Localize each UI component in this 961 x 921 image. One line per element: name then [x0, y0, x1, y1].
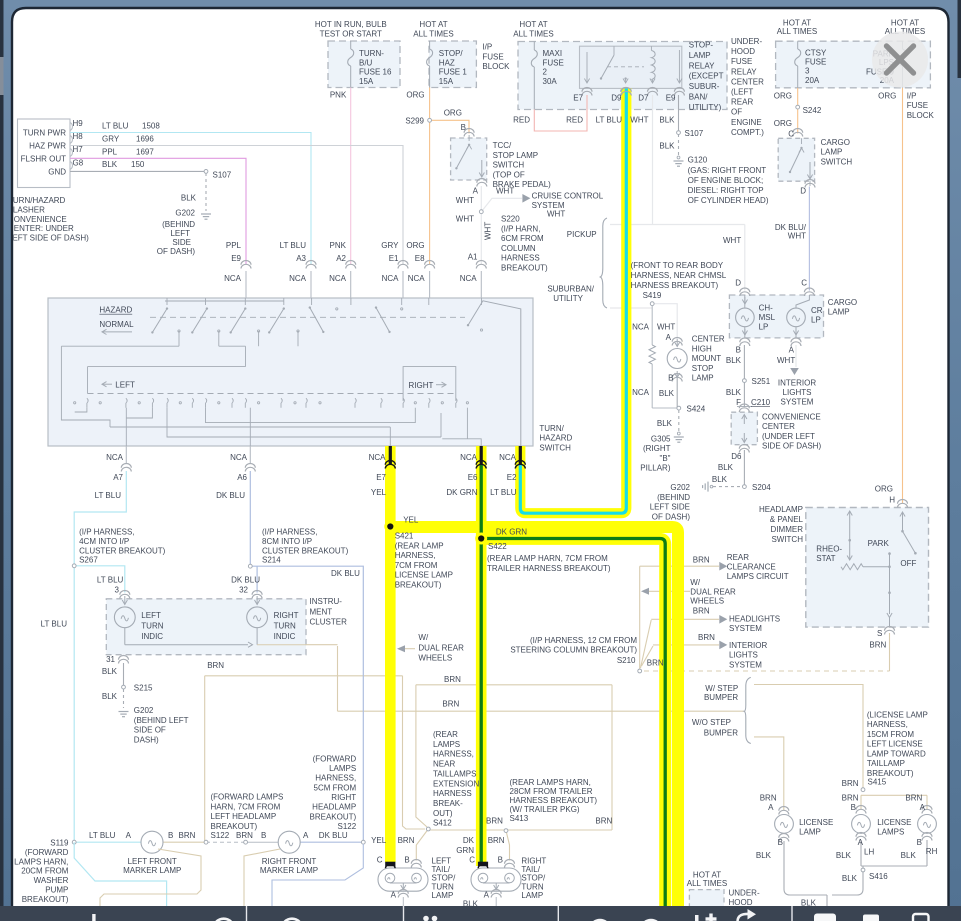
- svg-text:BRN: BRN: [444, 675, 461, 684]
- svg-text:HEADLIGHTS: HEADLIGHTS: [729, 614, 780, 623]
- svg-text:PILLAR): PILLAR): [640, 464, 671, 473]
- svg-text:A: A: [789, 345, 795, 354]
- svg-text:HARNESS,: HARNESS,: [395, 551, 436, 560]
- svg-text:HOOD: HOOD: [729, 898, 753, 907]
- svg-text:RELAY: RELAY: [731, 67, 757, 76]
- svg-text:A1: A1: [468, 253, 478, 262]
- svg-text:S: S: [877, 629, 882, 638]
- svg-text:UTILITY: UTILITY: [553, 294, 583, 303]
- svg-text:150: 150: [131, 160, 145, 169]
- svg-text:TAILLAMPS: TAILLAMPS: [433, 769, 476, 778]
- svg-text:C: C: [377, 855, 383, 864]
- svg-text:ALL TIMES: ALL TIMES: [513, 29, 553, 38]
- svg-text:SUBURBAN/: SUBURBAN/: [547, 285, 594, 294]
- svg-text:HEADLAMP: HEADLAMP: [759, 505, 803, 514]
- svg-text:S267: S267: [79, 556, 98, 565]
- svg-text:BLK: BLK: [842, 874, 858, 883]
- svg-text:A: A: [666, 333, 672, 342]
- svg-text:CONVENIENCE: CONVENIENCE: [762, 412, 821, 421]
- svg-text:SYSTEM: SYSTEM: [781, 398, 814, 407]
- svg-text:MAXI: MAXI: [543, 49, 563, 58]
- svg-text:E7: E7: [573, 94, 583, 103]
- svg-text:ALL TIMES: ALL TIMES: [687, 879, 727, 888]
- svg-text:SWITCH: SWITCH: [493, 161, 525, 170]
- svg-text:1697: 1697: [136, 148, 154, 157]
- svg-text:LT BLU: LT BLU: [280, 241, 307, 250]
- svg-text:(RIGHT: (RIGHT: [643, 444, 671, 453]
- svg-text:LEFT LICENSE: LEFT LICENSE: [867, 740, 923, 749]
- svg-text:DK: DK: [463, 836, 475, 845]
- svg-text:UNDER-: UNDER-: [729, 889, 760, 898]
- svg-text:1508: 1508: [142, 121, 160, 130]
- svg-text:OF CYLINDER HEAD): OF CYLINDER HEAD): [688, 196, 769, 205]
- svg-text:LAMPS HARN,: LAMPS HARN,: [14, 857, 68, 866]
- svg-text:E9: E9: [666, 94, 676, 103]
- svg-text:NCA: NCA: [460, 453, 478, 462]
- svg-text:B: B: [668, 373, 673, 382]
- svg-text:LICENSE LAMP: LICENSE LAMP: [395, 571, 453, 580]
- svg-text:HEADLAMP: HEADLAMP: [312, 803, 356, 812]
- svg-text:S122: S122: [338, 822, 357, 831]
- svg-text:CARGO: CARGO: [828, 298, 857, 307]
- svg-text:(W/ TRAILER PKG): (W/ TRAILER PKG): [510, 805, 580, 814]
- svg-text:LAMPS CIRCUIT: LAMPS CIRCUIT: [727, 572, 789, 581]
- svg-text:BREAK-: BREAK-: [433, 799, 463, 808]
- svg-text:BLK: BLK: [712, 475, 728, 484]
- svg-text:LEFT SIDE: LEFT SIDE: [650, 503, 690, 512]
- svg-text:15A: 15A: [359, 77, 374, 86]
- svg-text:TEST OR START: TEST OR START: [320, 29, 382, 38]
- svg-text:TAILLAMP: TAILLAMP: [867, 759, 905, 768]
- svg-text:G202: G202: [134, 706, 154, 715]
- svg-text:LAMP: LAMP: [692, 374, 714, 383]
- svg-text:LAMP: LAMP: [689, 51, 711, 60]
- svg-text:CLUSTER BREAKOUT): CLUSTER BREAKOUT): [262, 546, 349, 555]
- svg-text:UTILITY): UTILITY): [689, 103, 722, 112]
- svg-text:ORG: ORG: [444, 108, 462, 117]
- svg-text:SIDE OF DASH): SIDE OF DASH): [762, 442, 821, 451]
- svg-text:CENTER: CENTER: [692, 335, 725, 344]
- svg-text:LT BLU: LT BLU: [102, 121, 129, 130]
- svg-text:BUMPER: BUMPER: [704, 728, 738, 737]
- svg-text:30A: 30A: [543, 77, 558, 86]
- svg-text:S119: S119: [50, 838, 69, 847]
- svg-text:B/U: B/U: [359, 58, 373, 67]
- svg-text:STOP LAMP: STOP LAMP: [493, 151, 538, 160]
- svg-text:S215: S215: [134, 683, 153, 692]
- svg-text:TURN/HAZARD: TURN/HAZARD: [8, 196, 66, 205]
- svg-text:A: A: [768, 803, 774, 812]
- svg-text:1696: 1696: [136, 135, 154, 144]
- svg-text:S107: S107: [685, 129, 704, 138]
- svg-text:BRN: BRN: [488, 836, 505, 845]
- svg-text:SYSTEM: SYSTEM: [729, 624, 762, 633]
- svg-text:GND: GND: [48, 167, 66, 176]
- svg-text:LEFT: LEFT: [432, 856, 452, 865]
- svg-text:HAZARD: HAZARD: [99, 305, 132, 314]
- svg-text:TURN: TURN: [521, 882, 543, 891]
- svg-text:COLUMN: COLUMN: [501, 244, 536, 253]
- svg-text:28CM FROM TRAILER: 28CM FROM TRAILER: [510, 787, 593, 796]
- svg-text:B: B: [778, 838, 783, 847]
- svg-text:GRY: GRY: [102, 135, 120, 144]
- svg-text:GRN: GRN: [456, 846, 474, 855]
- svg-text:S242: S242: [803, 106, 822, 115]
- svg-text:(REAR: (REAR: [433, 730, 458, 739]
- svg-text:BLK: BLK: [657, 419, 673, 428]
- svg-text:WHT: WHT: [496, 186, 514, 195]
- svg-text:WHT: WHT: [777, 356, 795, 365]
- svg-text:STEERING COLUMN BREAKOUT): STEERING COLUMN BREAKOUT): [510, 646, 637, 655]
- svg-text:STOP/: STOP/: [521, 874, 546, 883]
- svg-text:W/ STEP: W/ STEP: [705, 684, 738, 693]
- svg-text:E1: E1: [389, 254, 399, 263]
- svg-text:A: A: [858, 838, 864, 847]
- svg-text:D: D: [735, 279, 741, 288]
- svg-text:CONVENIENCE: CONVENIENCE: [8, 215, 67, 224]
- svg-text:NCA: NCA: [382, 274, 400, 283]
- svg-text:15CM FROM: 15CM FROM: [867, 730, 914, 739]
- svg-text:BRN: BRN: [869, 640, 886, 649]
- svg-text:DK BLU: DK BLU: [319, 831, 348, 840]
- svg-text:WHT: WHT: [657, 322, 675, 331]
- svg-text:E8: E8: [415, 254, 425, 263]
- svg-text:BRN: BRN: [442, 699, 459, 708]
- svg-text:TURN: TURN: [432, 882, 454, 891]
- svg-text:B: B: [404, 855, 409, 864]
- svg-text:DK BLU: DK BLU: [216, 491, 245, 500]
- svg-text:B: B: [261, 831, 266, 840]
- svg-text:SWITCH: SWITCH: [539, 443, 571, 452]
- svg-text:TURN: TURN: [274, 622, 296, 631]
- svg-text:FLSHR OUT: FLSHR OUT: [21, 155, 66, 164]
- svg-text:LT BLU: LT BLU: [89, 831, 116, 840]
- svg-text:CENTER: CENTER: [762, 422, 795, 431]
- svg-text:STOP: STOP: [692, 364, 714, 373]
- svg-text:H8: H8: [73, 132, 84, 141]
- svg-text:FUSE 1: FUSE 1: [439, 68, 468, 77]
- svg-text:PNK: PNK: [330, 241, 347, 250]
- svg-text:BREAKOUT): BREAKOUT): [22, 895, 69, 904]
- svg-text:S251: S251: [752, 377, 771, 386]
- svg-text:TRAILER HARNESS BREAKOUT): TRAILER HARNESS BREAKOUT): [487, 564, 611, 573]
- svg-text:RELAY: RELAY: [689, 61, 715, 70]
- svg-text:S416: S416: [869, 872, 888, 881]
- svg-text:BLK: BLK: [901, 851, 917, 860]
- svg-text:MARKER LAMP: MARKER LAMP: [260, 866, 318, 875]
- svg-text:HARNESS, NEAR CHMSL: HARNESS, NEAR CHMSL: [631, 271, 727, 280]
- svg-text:LEFT: LEFT: [141, 611, 161, 620]
- svg-text:E2: E2: [507, 473, 517, 482]
- svg-text:31: 31: [106, 655, 115, 664]
- svg-text:SWITCH: SWITCH: [821, 157, 853, 166]
- svg-text:D6: D6: [731, 452, 742, 461]
- svg-text:B: B: [168, 831, 173, 840]
- svg-text:DK GRN: DK GRN: [496, 528, 527, 537]
- svg-text:H9: H9: [73, 119, 84, 128]
- svg-text:(I/P HARN,: (I/P HARN,: [501, 224, 540, 233]
- svg-text:W/O STEP: W/O STEP: [692, 718, 731, 727]
- svg-text:LIGHTS: LIGHTS: [783, 388, 812, 397]
- svg-text:3: 3: [805, 67, 810, 76]
- svg-text:S415: S415: [868, 778, 887, 787]
- svg-text:LAMPS: LAMPS: [877, 828, 904, 837]
- svg-text:EXTENSION: EXTENSION: [433, 779, 479, 788]
- svg-text:HOT AT: HOT AT: [419, 20, 447, 29]
- svg-text:BRN: BRN: [760, 793, 777, 802]
- svg-text:BRN: BRN: [647, 659, 664, 668]
- svg-text:D7: D7: [638, 94, 649, 103]
- svg-text:HIGH: HIGH: [692, 344, 712, 353]
- svg-text:I/P: I/P: [907, 91, 917, 100]
- svg-text:BLK: BLK: [836, 851, 852, 860]
- svg-text:B: B: [851, 803, 856, 812]
- svg-text:LAMP: LAMP: [799, 828, 821, 837]
- svg-text:A: A: [473, 186, 479, 195]
- svg-text:NCA: NCA: [460, 274, 478, 283]
- svg-text:YEL: YEL: [371, 488, 387, 497]
- svg-text:CRUISE CONTROL: CRUISE CONTROL: [532, 192, 604, 201]
- svg-text:INTERIOR: INTERIOR: [778, 378, 816, 387]
- svg-text:LT BLU: LT BLU: [41, 620, 68, 629]
- svg-text:H: H: [889, 496, 895, 505]
- svg-text:BRN: BRN: [486, 817, 503, 826]
- svg-text:W/: W/: [690, 578, 701, 587]
- svg-text:A6: A6: [237, 473, 247, 482]
- svg-text:CLUSTER BREAKOUT): CLUSTER BREAKOUT): [79, 546, 166, 555]
- svg-text:DIMMER: DIMMER: [771, 525, 804, 534]
- svg-text:ALL TIMES: ALL TIMES: [413, 29, 453, 38]
- svg-text:(FORWARD LAMPS: (FORWARD LAMPS: [211, 793, 284, 802]
- svg-text:BREAKOUT): BREAKOUT): [501, 263, 548, 272]
- svg-text:PNK: PNK: [330, 91, 347, 100]
- svg-text:HOT IN RUN, BULB: HOT IN RUN, BULB: [315, 20, 387, 29]
- svg-text:PARK: PARK: [868, 539, 890, 548]
- svg-text:DK BLU: DK BLU: [331, 569, 360, 578]
- svg-text:WASHER: WASHER: [34, 876, 69, 885]
- svg-text:BRN: BRN: [236, 831, 253, 840]
- svg-text:STOP/: STOP/: [439, 49, 464, 58]
- svg-text:B: B: [917, 838, 922, 847]
- svg-text:A: A: [484, 891, 490, 900]
- svg-text:LICENSE: LICENSE: [799, 818, 833, 827]
- svg-text:ENGINE: ENGINE: [731, 118, 762, 127]
- svg-text:YEL: YEL: [371, 836, 387, 845]
- svg-text:BLK: BLK: [659, 389, 675, 398]
- svg-text:D: D: [800, 186, 806, 195]
- svg-text:(FORWARD: (FORWARD: [313, 754, 357, 763]
- svg-text:HARNESS BREAKOUT): HARNESS BREAKOUT): [510, 796, 598, 805]
- svg-text:ORG: ORG: [406, 91, 424, 100]
- svg-text:YEL: YEL: [403, 515, 419, 524]
- svg-text:S413: S413: [510, 814, 529, 823]
- svg-text:FUSE: FUSE: [907, 101, 928, 110]
- svg-text:C: C: [788, 130, 794, 139]
- svg-text:HAZARD: HAZARD: [539, 434, 572, 443]
- svg-text:TURN/: TURN/: [539, 424, 564, 433]
- svg-text:STOP/: STOP/: [432, 874, 457, 883]
- svg-text:FUSE: FUSE: [482, 52, 503, 61]
- svg-text:INDIC: INDIC: [141, 632, 163, 641]
- svg-text:NCA: NCA: [230, 453, 248, 462]
- svg-text:NCA: NCA: [289, 274, 307, 283]
- svg-text:CENTER: UNDER: CENTER: UNDER: [8, 224, 74, 233]
- svg-text:15A: 15A: [439, 77, 454, 86]
- svg-text:A: A: [303, 831, 309, 840]
- svg-text:BLOCK: BLOCK: [907, 111, 935, 120]
- svg-text:BRN: BRN: [693, 556, 710, 565]
- svg-text:BUMPER: BUMPER: [704, 693, 738, 702]
- svg-text:SIDE: SIDE: [172, 238, 191, 247]
- svg-text:NCA: NCA: [224, 274, 242, 283]
- svg-text:WHT: WHT: [547, 209, 565, 218]
- svg-text:DK BLU: DK BLU: [231, 575, 260, 584]
- svg-text:S214: S214: [262, 556, 281, 565]
- svg-text:RIGHT: RIGHT: [331, 793, 356, 802]
- svg-text:RED: RED: [566, 116, 583, 125]
- svg-text:LAMP: LAMP: [828, 308, 850, 317]
- svg-text:NEAR: NEAR: [433, 760, 455, 769]
- svg-text:MENT: MENT: [310, 607, 333, 616]
- svg-text:H7: H7: [73, 145, 84, 154]
- svg-text:HAZ PWR: HAZ PWR: [29, 142, 66, 151]
- svg-text:HARNESS,: HARNESS,: [867, 720, 908, 729]
- svg-text:HAZ: HAZ: [439, 58, 455, 67]
- svg-text:ALL TIMES: ALL TIMES: [777, 27, 817, 36]
- svg-text:REAR: REAR: [731, 98, 753, 107]
- svg-text:BREAKOUT): BREAKOUT): [395, 581, 442, 590]
- svg-text:B: B: [498, 855, 503, 864]
- svg-text:SIDE OF: SIDE OF: [134, 726, 166, 735]
- svg-text:WHT: WHT: [630, 116, 648, 125]
- svg-text:S210: S210: [617, 656, 636, 665]
- svg-text:PPL: PPL: [226, 241, 242, 250]
- svg-text:WHT: WHT: [788, 232, 806, 241]
- svg-text:(REAR LAMPS HARN,: (REAR LAMPS HARN,: [510, 778, 591, 787]
- svg-text:(LICENSE LAMP: (LICENSE LAMP: [867, 710, 928, 719]
- svg-text:DK GRN: DK GRN: [446, 488, 477, 497]
- svg-text:DUAL REAR: DUAL REAR: [418, 643, 464, 652]
- svg-text:BLK: BLK: [102, 692, 118, 701]
- svg-text:LT BLU: LT BLU: [596, 116, 623, 125]
- svg-text:A: A: [391, 891, 397, 900]
- svg-text:UNDER-: UNDER-: [731, 37, 762, 46]
- svg-text:NCA: NCA: [106, 453, 124, 462]
- svg-text:SUBUR-: SUBUR-: [689, 82, 720, 91]
- svg-text:NCA: NCA: [632, 388, 650, 397]
- svg-text:S412: S412: [433, 819, 452, 828]
- svg-text:C: C: [801, 279, 807, 288]
- svg-text:2: 2: [543, 68, 548, 77]
- svg-text:G305: G305: [651, 434, 671, 443]
- svg-text:(EXCEPT: (EXCEPT: [689, 72, 724, 81]
- svg-text:INSTRU-: INSTRU-: [310, 597, 343, 606]
- svg-text:ORG: ORG: [406, 241, 424, 250]
- svg-text:NCA: NCA: [369, 453, 387, 462]
- svg-text:& PANEL: & PANEL: [770, 515, 804, 524]
- svg-text:BLK: BLK: [726, 388, 742, 397]
- svg-text:RIGHT: RIGHT: [274, 611, 299, 620]
- svg-text:LAMP: LAMP: [432, 891, 454, 900]
- svg-text:(I/P HARNESS,: (I/P HARNESS,: [79, 528, 134, 537]
- svg-text:A: A: [920, 803, 926, 812]
- svg-text:LAMPS: LAMPS: [329, 764, 356, 773]
- svg-text:BRN: BRN: [179, 831, 196, 840]
- svg-text:RHEO-: RHEO-: [816, 545, 842, 554]
- svg-text:D9: D9: [611, 94, 622, 103]
- svg-text:BRN: BRN: [207, 661, 224, 670]
- svg-text:S419: S419: [643, 291, 662, 300]
- svg-text:6CM FROM: 6CM FROM: [501, 234, 544, 243]
- svg-text:MARKER LAMP: MARKER LAMP: [123, 866, 181, 875]
- svg-text:OFF: OFF: [900, 559, 916, 568]
- svg-text:BLK: BLK: [181, 194, 197, 203]
- svg-text:BLK: BLK: [659, 141, 675, 150]
- svg-text:NCA: NCA: [632, 322, 650, 331]
- svg-text:HARNESS,: HARNESS,: [433, 750, 474, 759]
- svg-text:C: C: [469, 855, 475, 864]
- svg-text:3: 3: [115, 585, 120, 594]
- svg-text:GRY: GRY: [381, 241, 399, 250]
- svg-text:LH: LH: [864, 847, 874, 856]
- svg-text:B: B: [736, 345, 741, 354]
- svg-text:PPL: PPL: [102, 148, 118, 157]
- svg-text:(LEFT: (LEFT: [731, 88, 753, 97]
- svg-text:SWITCH: SWITCH: [771, 535, 803, 544]
- svg-text:LAMPS: LAMPS: [433, 740, 460, 749]
- svg-text:(BEHIND LEFT: (BEHIND LEFT: [134, 716, 189, 725]
- svg-text:BREAKOUT): BREAKOUT): [310, 812, 357, 821]
- svg-text:WHT: WHT: [456, 196, 474, 205]
- svg-text:(FORWARD: (FORWARD: [25, 848, 69, 857]
- svg-text:TURN: TURN: [141, 622, 163, 631]
- svg-text:MOUNT: MOUNT: [692, 354, 721, 363]
- svg-text:LP: LP: [811, 316, 821, 325]
- svg-text:BRN: BRN: [698, 633, 715, 642]
- svg-text:DASH): DASH): [134, 735, 159, 744]
- svg-text:ORG: ORG: [774, 91, 792, 100]
- svg-text:SYSTEM: SYSTEM: [729, 660, 762, 669]
- svg-text:20CM FROM: 20CM FROM: [21, 867, 68, 876]
- svg-text:STOP-: STOP-: [689, 41, 714, 50]
- svg-text:STAT: STAT: [816, 554, 835, 563]
- svg-text:WHEELS: WHEELS: [418, 654, 452, 663]
- svg-text:BRN: BRN: [693, 607, 710, 616]
- svg-text:ORG: ORG: [875, 484, 893, 493]
- svg-text:DIESEL: RIGHT TOP: DIESEL: RIGHT TOP: [688, 186, 764, 195]
- svg-text:BRN: BRN: [842, 779, 859, 788]
- svg-text:RH: RH: [926, 847, 938, 856]
- svg-text:32: 32: [239, 585, 248, 594]
- svg-text:C210: C210: [751, 398, 771, 407]
- svg-text:(REAR LAMP HARN, 7CM FROM: (REAR LAMP HARN, 7CM FROM: [487, 554, 608, 563]
- svg-text:LT BLU: LT BLU: [97, 575, 124, 584]
- svg-text:G120: G120: [688, 155, 708, 164]
- svg-text:LAMP: LAMP: [521, 891, 543, 900]
- svg-text:INTERIOR: INTERIOR: [729, 641, 767, 650]
- svg-text:FLASHER: FLASHER: [8, 205, 45, 214]
- svg-text:HARNESS BREAKOUT): HARNESS BREAKOUT): [631, 281, 719, 290]
- svg-text:NCA: NCA: [329, 274, 347, 283]
- svg-text:"B": "B": [659, 454, 670, 463]
- svg-text:LIGHTS: LIGHTS: [729, 651, 758, 660]
- svg-text:NCA: NCA: [499, 453, 517, 462]
- svg-text:HOOD: HOOD: [731, 47, 755, 56]
- svg-text:G202: G202: [670, 483, 690, 492]
- svg-text:HARNESS,: HARNESS,: [315, 774, 356, 783]
- svg-text:HOT AT: HOT AT: [519, 20, 547, 29]
- svg-text:(I/P HARNESS, 12 CM FROM: (I/P HARNESS, 12 CM FROM: [530, 636, 637, 645]
